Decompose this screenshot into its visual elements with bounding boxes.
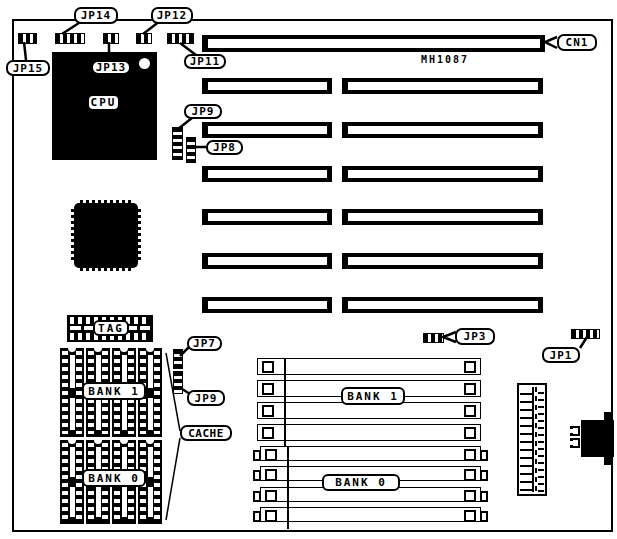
label-jp3: JP3 (455, 328, 495, 345)
callout-lines (0, 0, 617, 539)
label-jp11: JP11 (184, 54, 226, 69)
label-cn1: CN1 (557, 34, 597, 51)
label-jp12: JP12 (151, 7, 193, 24)
label-jp15: JP15 (6, 60, 50, 76)
label-jp7: JP7 (187, 336, 222, 351)
label-jp1: JP1 (542, 347, 580, 363)
label-jp8: JP8 (206, 140, 243, 155)
motherboard-diagram: CPU MH1087 TAG BANK 1 BANK 0 BANK 1 BANK… (0, 0, 617, 539)
label-jp9-cache: JP9 (187, 390, 225, 406)
label-cache: CACHE (180, 425, 232, 441)
label-jp14: JP14 (74, 7, 118, 24)
label-jp13: JP13 (91, 60, 131, 75)
label-jp9-top: JP9 (184, 104, 222, 119)
